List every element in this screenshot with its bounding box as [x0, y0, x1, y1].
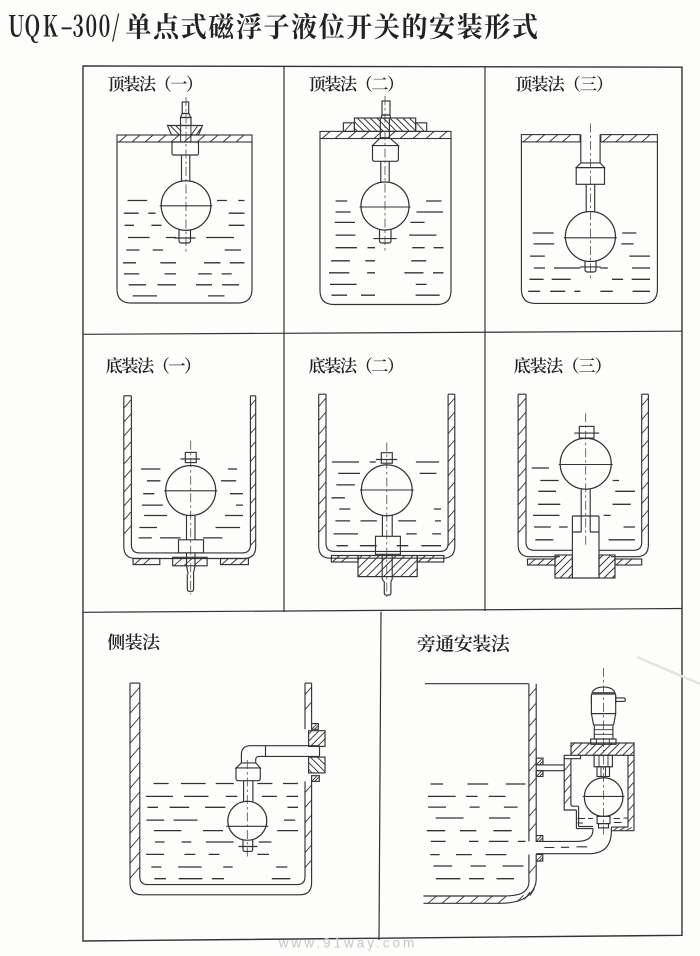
svg-text:www.91way.com: www.91way.com — [278, 936, 418, 951]
